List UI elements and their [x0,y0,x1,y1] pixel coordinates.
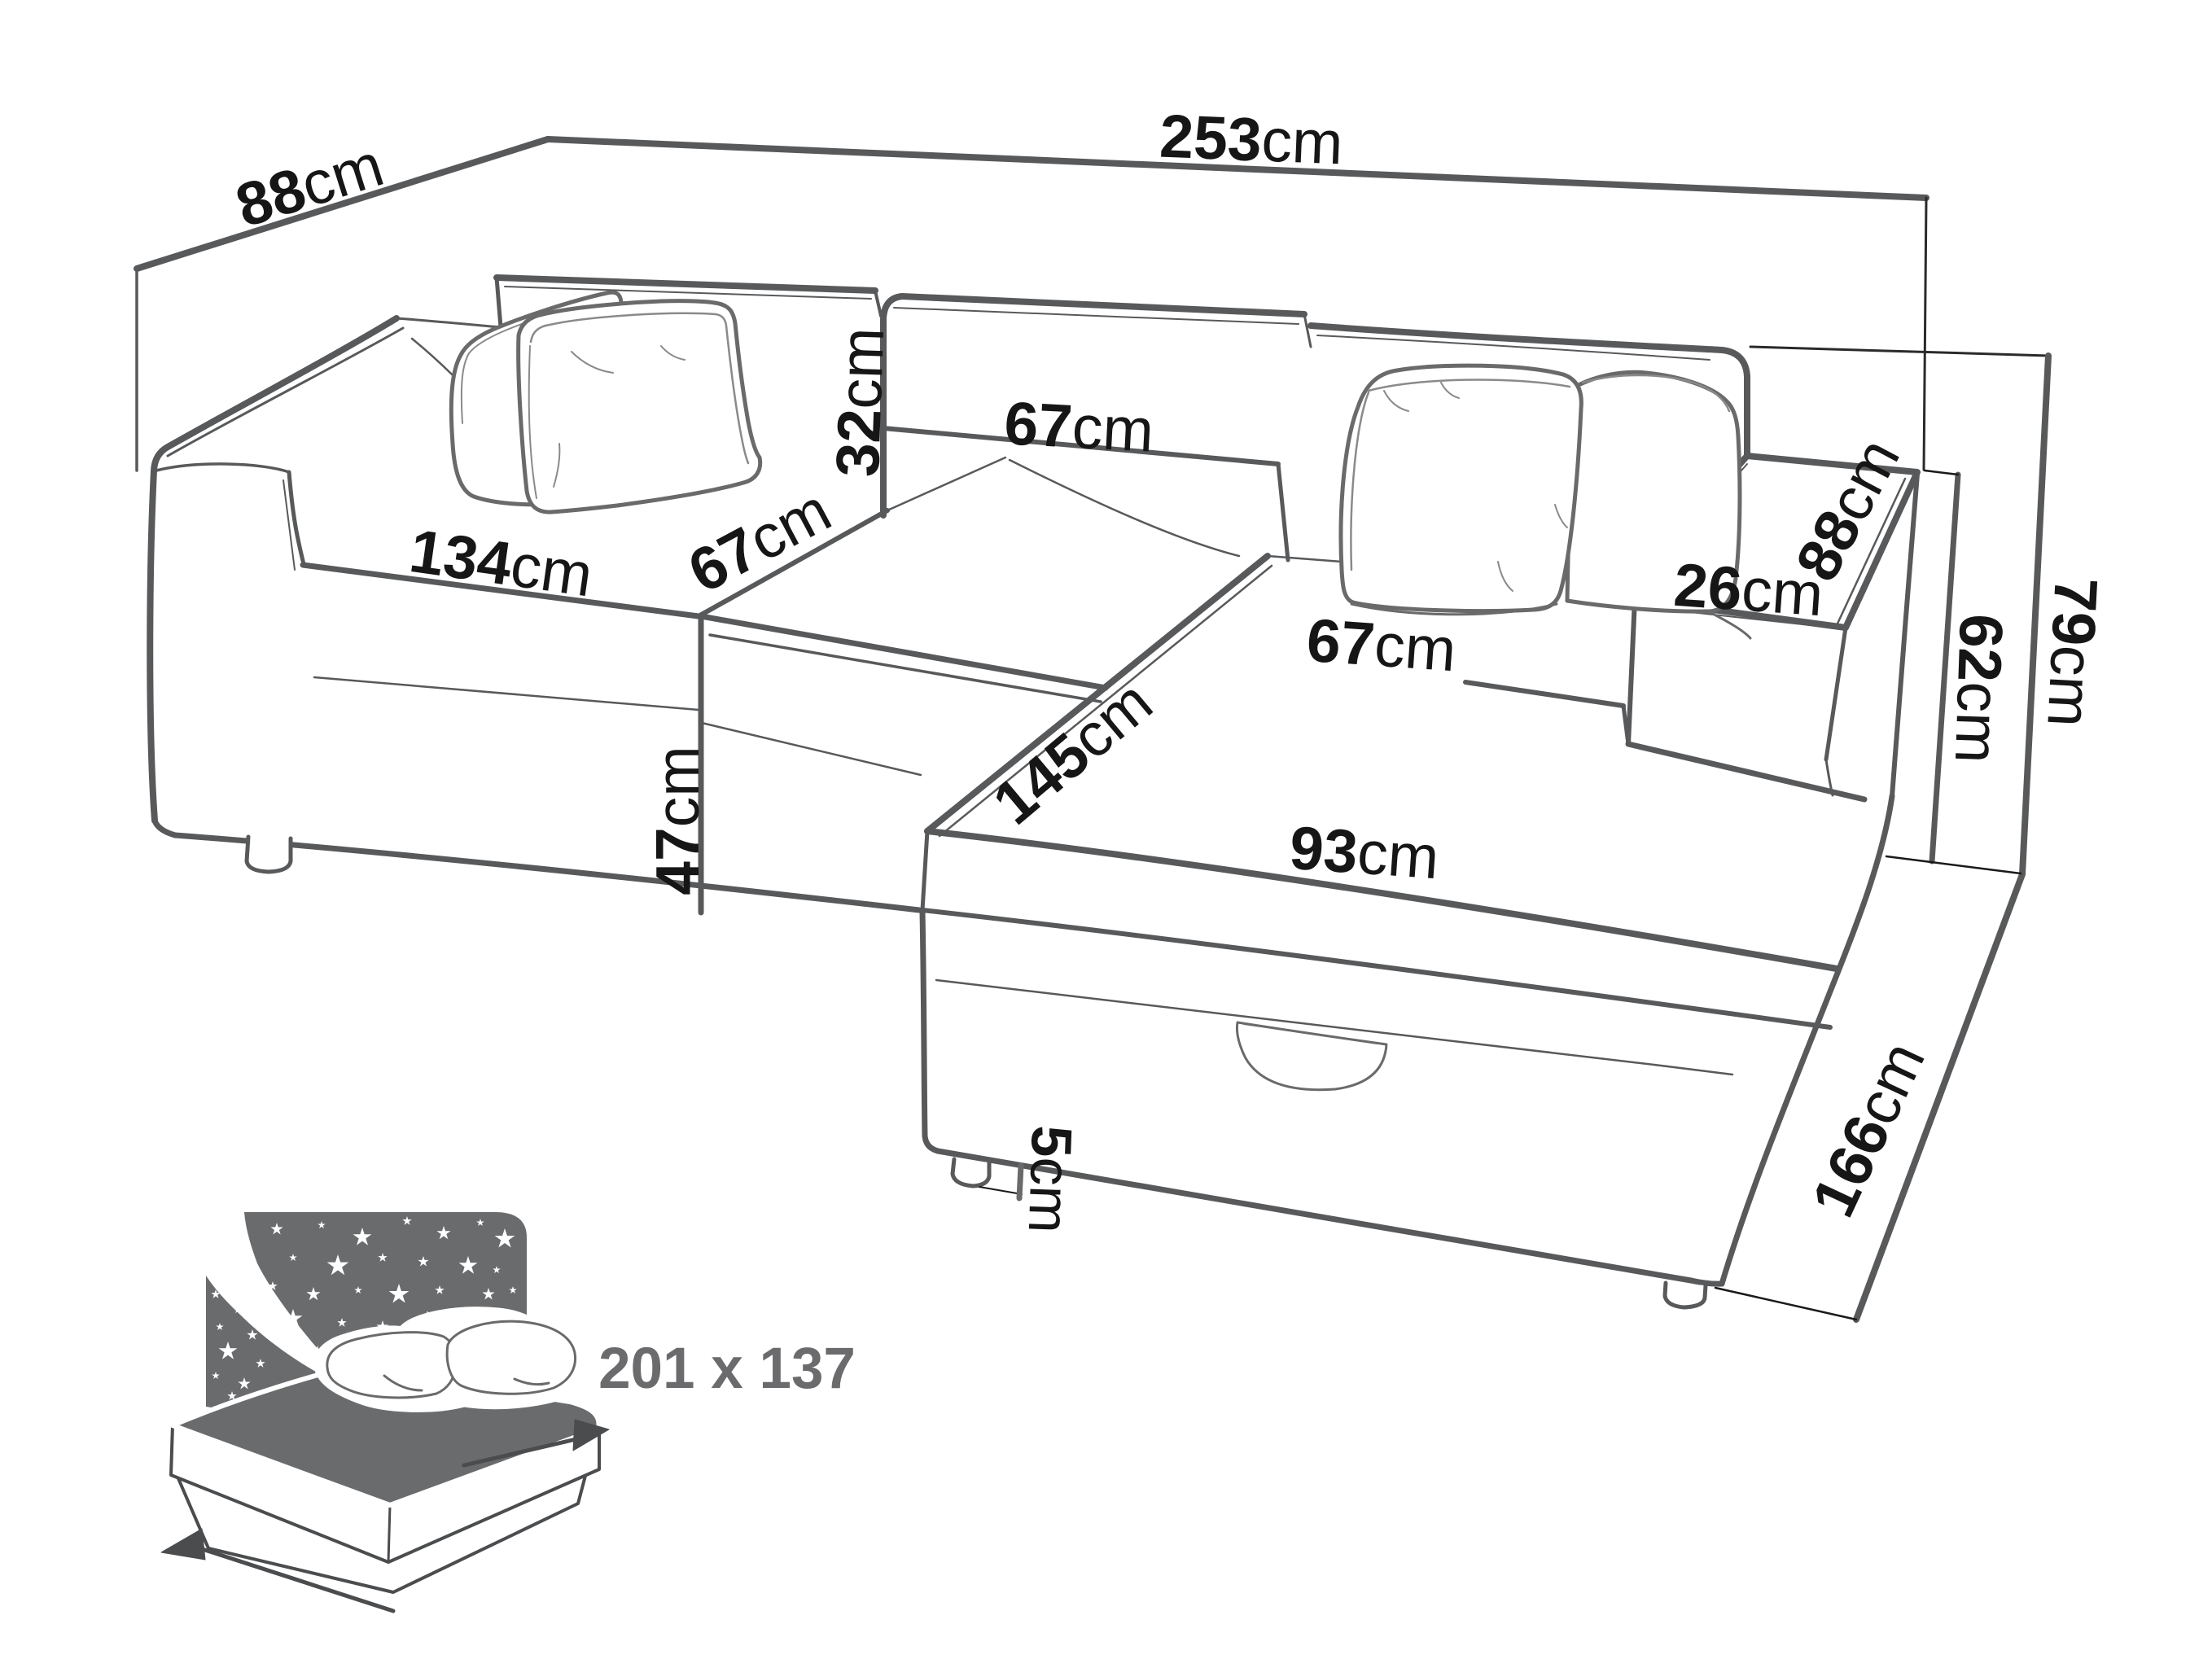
svg-text:62cm: 62cm [1943,613,2016,764]
svg-text:253cm: 253cm [1159,102,1344,177]
svg-text:79cm: 79cm [2035,576,2110,729]
svg-text:201 x 137: 201 x 137 [598,1337,856,1401]
svg-text:166cm: 166cm [1798,1031,1938,1227]
svg-text:5cm: 5cm [1017,1124,1084,1234]
svg-text:67cm: 67cm [1304,606,1458,685]
svg-text:67cm: 67cm [1003,388,1156,464]
svg-text:88cm: 88cm [228,130,391,240]
svg-text:32cm: 32cm [823,326,896,478]
svg-text:67cm: 67cm [677,475,841,606]
svg-text:145cm: 145cm [980,668,1164,838]
svg-text:134cm: 134cm [405,516,597,610]
svg-text:93cm: 93cm [1287,813,1441,892]
svg-text:47cm: 47cm [643,746,712,895]
